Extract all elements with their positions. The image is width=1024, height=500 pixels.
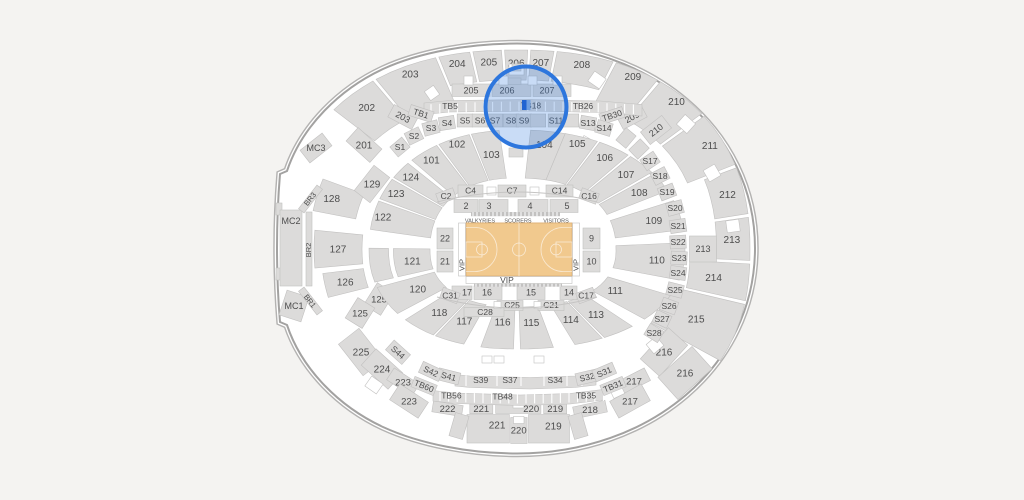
svg-text:S18: S18 [652, 171, 667, 181]
svg-text:S22: S22 [670, 237, 685, 247]
svg-text:204: 204 [449, 59, 466, 70]
svg-text:14: 14 [564, 288, 574, 298]
svg-text:S1: S1 [395, 142, 406, 152]
svg-text:S26: S26 [661, 301, 676, 311]
svg-text:225: 225 [353, 348, 370, 359]
svg-text:S19: S19 [659, 187, 674, 197]
svg-text:S14: S14 [596, 123, 611, 133]
svg-text:106: 106 [596, 153, 613, 164]
svg-text:108: 108 [631, 188, 648, 199]
svg-text:210: 210 [668, 97, 685, 108]
svg-text:120: 120 [409, 285, 426, 296]
svg-text:223: 223 [401, 396, 417, 407]
svg-text:2: 2 [463, 201, 468, 211]
svg-text:BR2: BR2 [304, 243, 313, 258]
svg-text:114: 114 [563, 315, 579, 326]
svg-text:C17: C17 [578, 291, 594, 301]
svg-text:219: 219 [545, 422, 562, 433]
svg-text:S17: S17 [642, 156, 657, 166]
svg-text:TB5: TB5 [442, 101, 458, 111]
svg-text:118: 118 [431, 308, 447, 319]
svg-text:129: 129 [364, 180, 381, 191]
svg-text:103: 103 [483, 150, 500, 161]
svg-text:209: 209 [625, 72, 642, 83]
svg-text:22: 22 [440, 234, 450, 244]
svg-text:208: 208 [573, 60, 590, 71]
svg-text:TB56: TB56 [441, 391, 462, 401]
svg-text:VALKYRIES: VALKYRIES [465, 218, 495, 224]
svg-text:220: 220 [511, 425, 527, 436]
svg-text:121: 121 [404, 257, 421, 268]
svg-text:123: 123 [388, 189, 405, 200]
svg-text:218: 218 [582, 405, 598, 416]
svg-text:4: 4 [527, 201, 532, 211]
svg-text:S23: S23 [671, 253, 686, 263]
svg-text:SCORERS: SCORERS [504, 218, 532, 224]
svg-text:VIP: VIP [458, 259, 467, 271]
svg-text:S37: S37 [502, 375, 517, 385]
svg-text:215: 215 [688, 314, 705, 325]
svg-text:TB26: TB26 [573, 101, 594, 111]
svg-text:105: 105 [569, 139, 586, 150]
svg-text:17: 17 [462, 288, 472, 298]
svg-text:107: 107 [618, 170, 635, 181]
svg-text:15: 15 [526, 288, 536, 298]
svg-text:5: 5 [564, 201, 569, 211]
svg-text:122: 122 [375, 213, 392, 224]
svg-text:109: 109 [646, 216, 663, 227]
svg-text:125: 125 [352, 308, 368, 319]
svg-text:S2: S2 [409, 131, 420, 141]
svg-text:219: 219 [547, 404, 563, 415]
svg-text:203: 203 [402, 70, 419, 81]
svg-text:VIP: VIP [500, 275, 514, 285]
svg-text:S4: S4 [442, 118, 453, 128]
svg-text:205: 205 [481, 58, 498, 69]
svg-text:214: 214 [705, 273, 722, 284]
svg-text:10: 10 [586, 257, 596, 267]
svg-text:S28: S28 [646, 328, 661, 338]
svg-text:MC3: MC3 [306, 143, 325, 153]
svg-text:102: 102 [449, 140, 466, 151]
svg-text:111: 111 [608, 286, 624, 297]
svg-text:205: 205 [463, 86, 478, 96]
svg-text:201: 201 [356, 141, 373, 152]
svg-text:S5: S5 [460, 116, 471, 126]
svg-text:TB48: TB48 [492, 392, 513, 402]
svg-text:213: 213 [695, 244, 710, 254]
svg-text:116: 116 [495, 318, 511, 329]
svg-text:101: 101 [423, 155, 440, 166]
svg-text:115: 115 [523, 318, 539, 329]
svg-text:S25: S25 [667, 285, 682, 295]
svg-text:S24: S24 [670, 268, 685, 278]
svg-text:224: 224 [374, 365, 391, 376]
svg-text:C28: C28 [477, 307, 493, 317]
svg-text:128: 128 [323, 194, 340, 205]
svg-text:212: 212 [719, 190, 736, 201]
svg-text:S6: S6 [475, 116, 486, 126]
svg-text:221: 221 [473, 404, 489, 415]
svg-text:216: 216 [677, 369, 694, 380]
svg-text:117: 117 [456, 317, 472, 328]
svg-text:21: 21 [440, 257, 450, 267]
svg-text:C16: C16 [581, 191, 597, 201]
svg-text:211: 211 [702, 141, 718, 152]
svg-text:C25: C25 [504, 300, 520, 310]
svg-text:VISITORS: VISITORS [543, 218, 569, 224]
svg-text:222: 222 [440, 404, 456, 415]
svg-text:127: 127 [330, 245, 347, 256]
svg-text:TB35: TB35 [576, 391, 597, 401]
svg-text:3: 3 [486, 201, 491, 211]
svg-text:S21: S21 [670, 221, 685, 231]
svg-text:126: 126 [337, 277, 354, 288]
svg-text:VIP: VIP [572, 259, 581, 271]
svg-text:16: 16 [482, 288, 492, 298]
svg-text:S39: S39 [473, 375, 488, 385]
svg-text:C7: C7 [507, 186, 518, 196]
svg-text:S34: S34 [548, 375, 563, 385]
svg-text:C4: C4 [465, 186, 476, 196]
svg-text:S13: S13 [580, 118, 595, 128]
svg-text:213: 213 [724, 235, 741, 246]
svg-text:110: 110 [649, 255, 665, 266]
svg-text:217: 217 [622, 396, 638, 407]
svg-text:S20: S20 [667, 203, 682, 213]
svg-text:9: 9 [589, 234, 594, 244]
svg-text:124: 124 [402, 173, 419, 184]
svg-text:MC2: MC2 [281, 216, 300, 226]
svg-text:113: 113 [588, 310, 604, 321]
svg-text:221: 221 [489, 421, 506, 432]
svg-text:S27: S27 [654, 314, 669, 324]
svg-text:MC1: MC1 [284, 301, 303, 311]
svg-text:S3: S3 [426, 123, 437, 133]
svg-text:202: 202 [358, 103, 375, 114]
